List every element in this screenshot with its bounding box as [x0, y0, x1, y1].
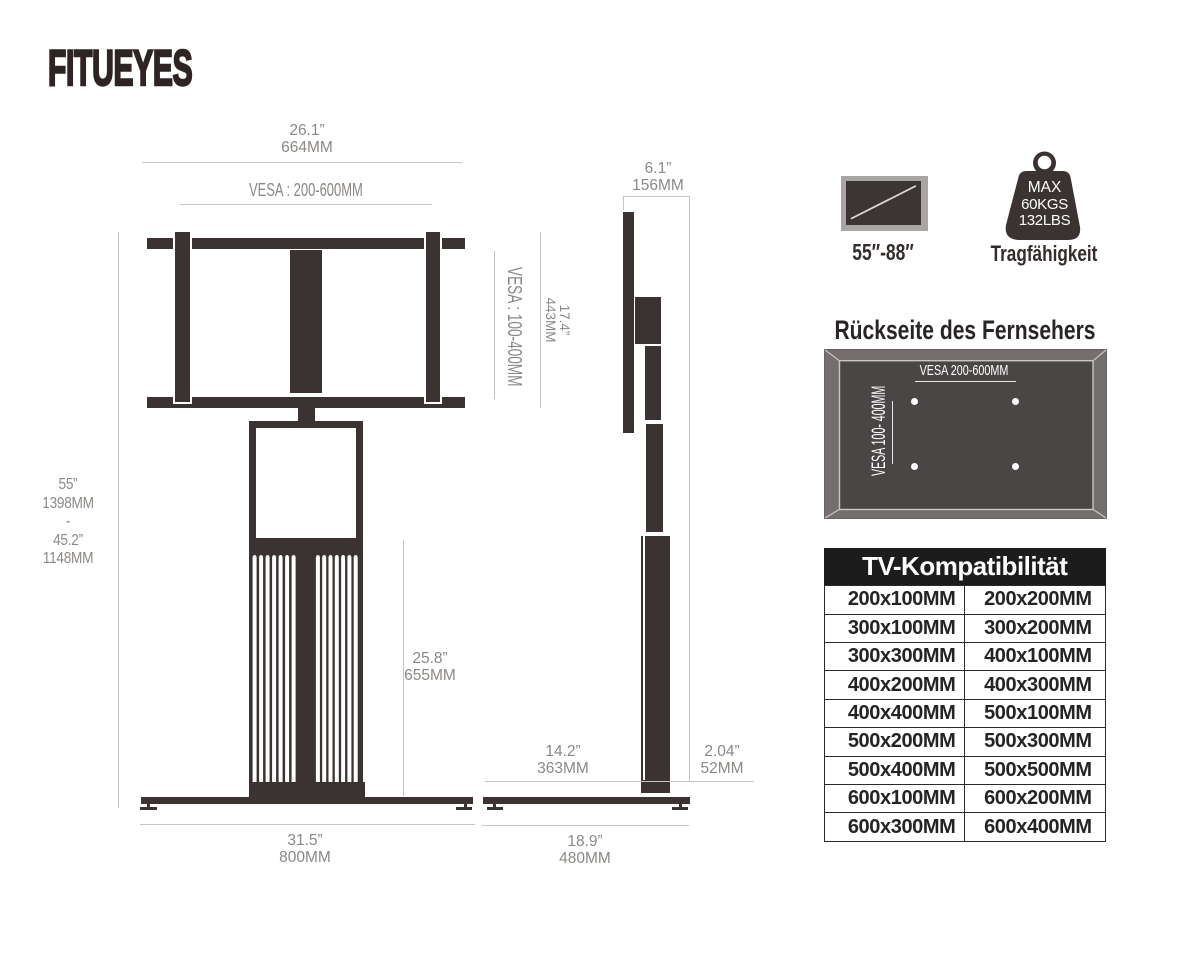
svg-text:60KGS: 60KGS [1021, 196, 1068, 213]
svg-text:132LBS: 132LBS [1019, 212, 1071, 229]
svg-text:MAX: MAX [1028, 179, 1062, 196]
